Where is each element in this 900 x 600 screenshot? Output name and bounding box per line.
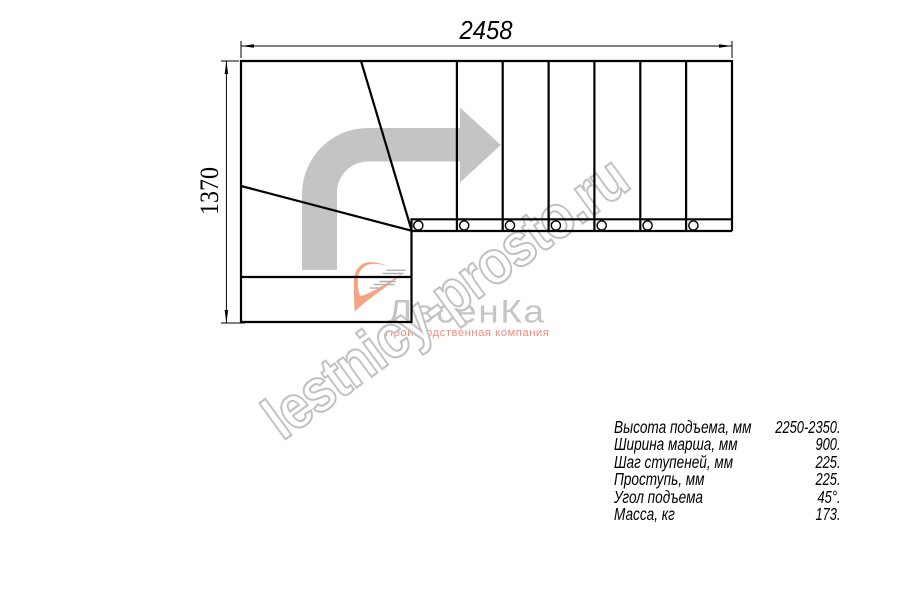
svg-text:2458: 2458 [459,15,513,45]
svg-text:1370: 1370 [195,167,224,215]
